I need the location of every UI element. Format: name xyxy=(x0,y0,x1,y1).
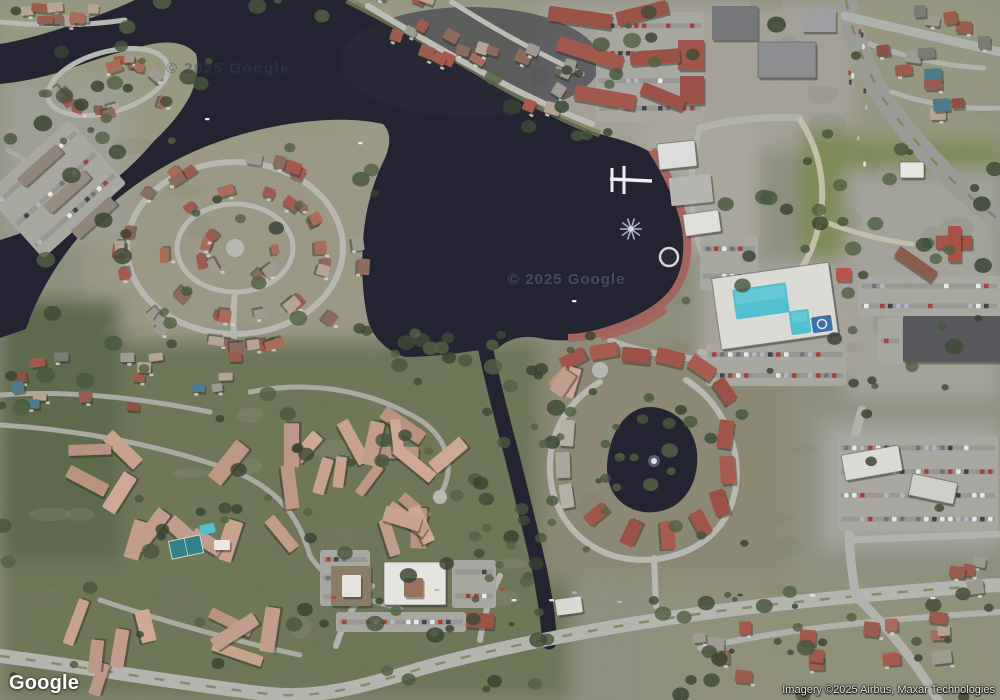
satellite-imagery xyxy=(0,0,1000,700)
google-logo[interactable]: Google xyxy=(9,672,79,695)
imagery-attribution: Imagery ©2025 Airbus, Maxar Technologies xyxy=(782,684,995,696)
satellite-map-viewport[interactable]: © 2025 Google © 2025 Google Google Image… xyxy=(0,0,1000,700)
